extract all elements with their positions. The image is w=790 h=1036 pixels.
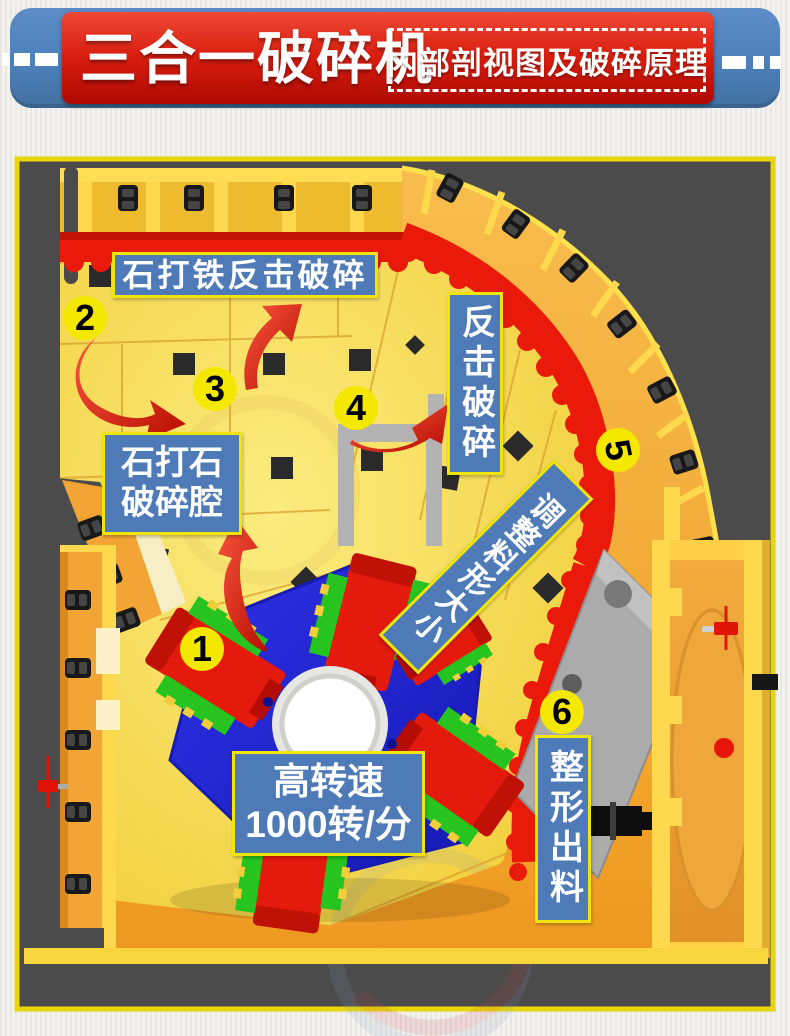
label-stone-on-iron-impact: 石打铁反击破碎 — [112, 252, 378, 298]
page: { "header": { "title": "三合一破碎机", "subtit… — [0, 0, 790, 1036]
label-stone-on-stone-chamber: 石打石 破碎腔 — [102, 432, 242, 535]
label-line: 石打石 — [121, 444, 223, 483]
red-indicator-dot — [714, 738, 734, 758]
label-line: 1000转/分 — [245, 804, 412, 847]
step-badge-3: 3 — [193, 367, 237, 411]
step-number: 5 — [595, 436, 640, 464]
step-badge-6: 6 — [540, 690, 584, 734]
step-number: 1 — [192, 628, 212, 670]
step-number: 2 — [75, 297, 95, 339]
feed-beam — [60, 168, 402, 232]
step-badge-2: 2 — [63, 296, 107, 340]
label-shaping-discharge: 整形出料 — [535, 735, 591, 923]
step-number: 6 — [552, 691, 572, 733]
right-wall — [652, 487, 778, 958]
label-line: 破碎腔 — [121, 484, 223, 523]
step-badge-4: 4 — [334, 386, 378, 430]
step-number: 4 — [346, 387, 366, 429]
label-line: 高转速 — [245, 761, 412, 804]
machine-base — [24, 948, 768, 964]
label-impact-crushing: 反击破碎 — [447, 292, 503, 475]
label-high-rotor-speed: 高转速 1000转/分 — [232, 751, 425, 856]
step-badge-5: 5 — [596, 428, 640, 472]
step-number: 3 — [205, 368, 225, 410]
step-badge-1: 1 — [180, 627, 224, 671]
